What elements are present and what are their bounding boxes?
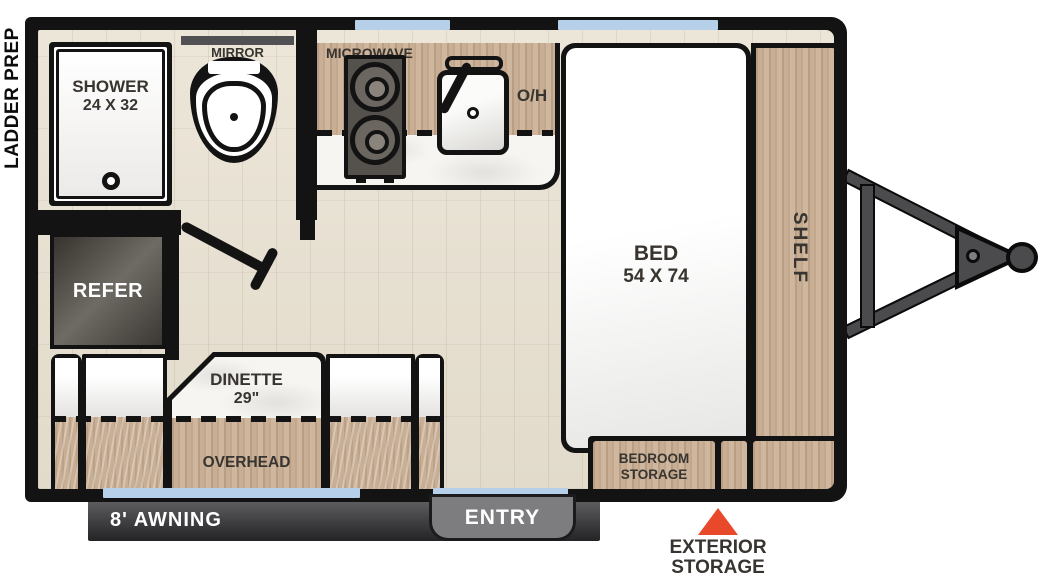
window [103,488,360,498]
ladder-prep-label-box: LADDER PREP [1,24,25,172]
burner-icon [350,62,400,112]
bathroom-door-icon [180,221,271,276]
sink-drain-icon [467,107,479,119]
hitch-crossbar-icon [860,184,875,328]
bed: BED 54 X 74 [561,43,751,453]
shelf: SHELF [751,43,834,453]
shower-stall: SHOWER 24 X 32 [49,42,172,206]
trailer-body: SHOWER 24 X 32 MIRROR [25,17,847,502]
bathroom-kitchen-wall [296,30,317,220]
hitch-plate-hole-icon [966,249,980,263]
shower-size-label: 24 X 32 [49,97,172,115]
bedroom-storage-section: BEDROOM STORAGE [593,441,715,489]
door-latch-icon [300,218,315,240]
overhead-cabinet-label: O/H [506,86,558,106]
burner-icon [350,115,400,165]
interior-floor: SHOWER 24 X 32 MIRROR [38,30,834,489]
shelf-label: SHELF [788,212,810,284]
hitch-coupler-icon [1006,242,1038,273]
awning-label: 8' AWNING [110,509,222,532]
entry-label: ENTRY [465,506,540,530]
faucet-icon [445,56,503,71]
entry-step: ENTRY [432,497,573,538]
dinette-label: DINETTE 29" [167,370,326,408]
bedroom-storage-section [721,441,747,489]
refer-label: REFER [73,280,143,303]
window [355,20,450,30]
dinette-overhead-dashed-line [51,416,444,422]
bathroom-wall [38,210,181,235]
floorplan-page: LADDER PREP SHOWER 24 X 32 MIRRO [0,0,1041,579]
refrigerator: REFER [50,233,166,349]
bed-label: BED 54 X 74 [561,241,751,289]
toilet-icon [190,57,278,163]
exterior-storage-label: EXTERIOR STORAGE [640,538,796,578]
dinette-size-label: 29" [167,390,326,408]
bed-size-label: 54 X 74 [561,266,751,289]
overhead-label: OVERHEAD [167,454,326,472]
shower-drain-icon [102,172,120,190]
bedroom-storage: BEDROOM STORAGE [588,436,834,489]
stove-icon [344,55,406,179]
bedroom-storage-section [753,441,834,489]
refer-side-wall [165,210,179,360]
exterior-storage-marker-icon [698,508,738,535]
mirror-icon [181,36,294,45]
window [558,20,718,30]
ladder-prep-label: LADDER PREP [2,27,24,169]
bedroom-storage-label: BEDROOM STORAGE [593,451,715,482]
shower-label: SHOWER 24 X 32 [49,78,172,114]
